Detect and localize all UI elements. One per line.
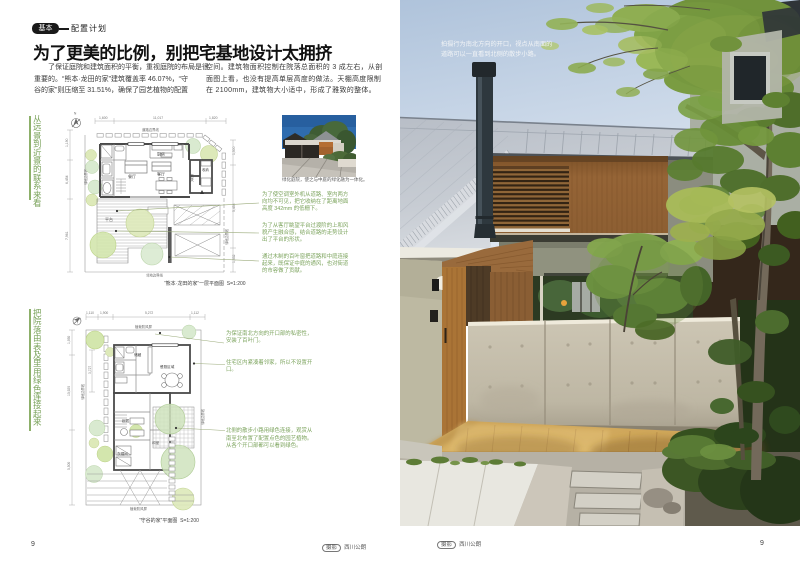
- svg-text:植栽防风屏: 植栽防风屏: [130, 506, 148, 511]
- svg-text:6,454: 6,454: [65, 175, 69, 184]
- svg-text:10,920: 10,920: [67, 386, 71, 396]
- svg-text:邻地边界线: 邻地边界线: [80, 383, 85, 400]
- svg-text:1,500: 1,500: [232, 146, 236, 155]
- svg-text:邻地边界线: 邻地边界线: [200, 408, 205, 425]
- svg-text:11,017: 11,017: [153, 116, 163, 120]
- svg-text:起居: 起居: [122, 418, 130, 423]
- svg-text:收纳: 收纳: [202, 167, 209, 172]
- svg-text:1,190: 1,190: [65, 138, 69, 147]
- svg-text:1,820: 1,820: [209, 116, 218, 120]
- svg-text:1,110: 1,110: [86, 311, 94, 315]
- svg-text:邻地边界线: 邻地边界线: [146, 273, 164, 278]
- svg-text:N: N: [74, 112, 77, 116]
- svg-text:1,950: 1,950: [67, 336, 71, 344]
- svg-text:厨房: 厨房: [157, 151, 165, 157]
- svg-text:5,500: 5,500: [67, 462, 71, 470]
- svg-text:1,600: 1,600: [99, 116, 108, 120]
- svg-text:邻地边界线: 邻地边界线: [224, 228, 229, 245]
- svg-text:拍摄行为南北方向的开口，视点从南面的: 拍摄行为南北方向的开口，视点从南面的: [441, 40, 552, 48]
- svg-text:1,332: 1,332: [232, 254, 236, 263]
- svg-text:道路边界线: 道路边界线: [142, 127, 160, 132]
- svg-text:1,900: 1,900: [100, 311, 108, 315]
- svg-text:客厅: 客厅: [157, 171, 165, 177]
- svg-text:餐厅: 餐厅: [128, 173, 136, 179]
- svg-text:3,727: 3,727: [88, 366, 92, 374]
- svg-text:衣帽间: 衣帽间: [117, 451, 128, 456]
- svg-text:平台: 平台: [105, 216, 113, 222]
- svg-text:植栽防风屏: 植栽防风屏: [135, 324, 153, 329]
- svg-text:储藏: 储藏: [134, 352, 142, 357]
- svg-text:玄关: 玄关: [189, 173, 194, 182]
- svg-text:餐厨区域: 餐厨区域: [160, 364, 175, 369]
- svg-text:道路可以一直看到北侧的散步小路。: 道路可以一直看到北侧的散步小路。: [441, 50, 540, 58]
- svg-text:7,961: 7,961: [65, 231, 69, 240]
- svg-text:5,272: 5,272: [145, 311, 153, 315]
- svg-text:1,112: 1,112: [191, 311, 199, 315]
